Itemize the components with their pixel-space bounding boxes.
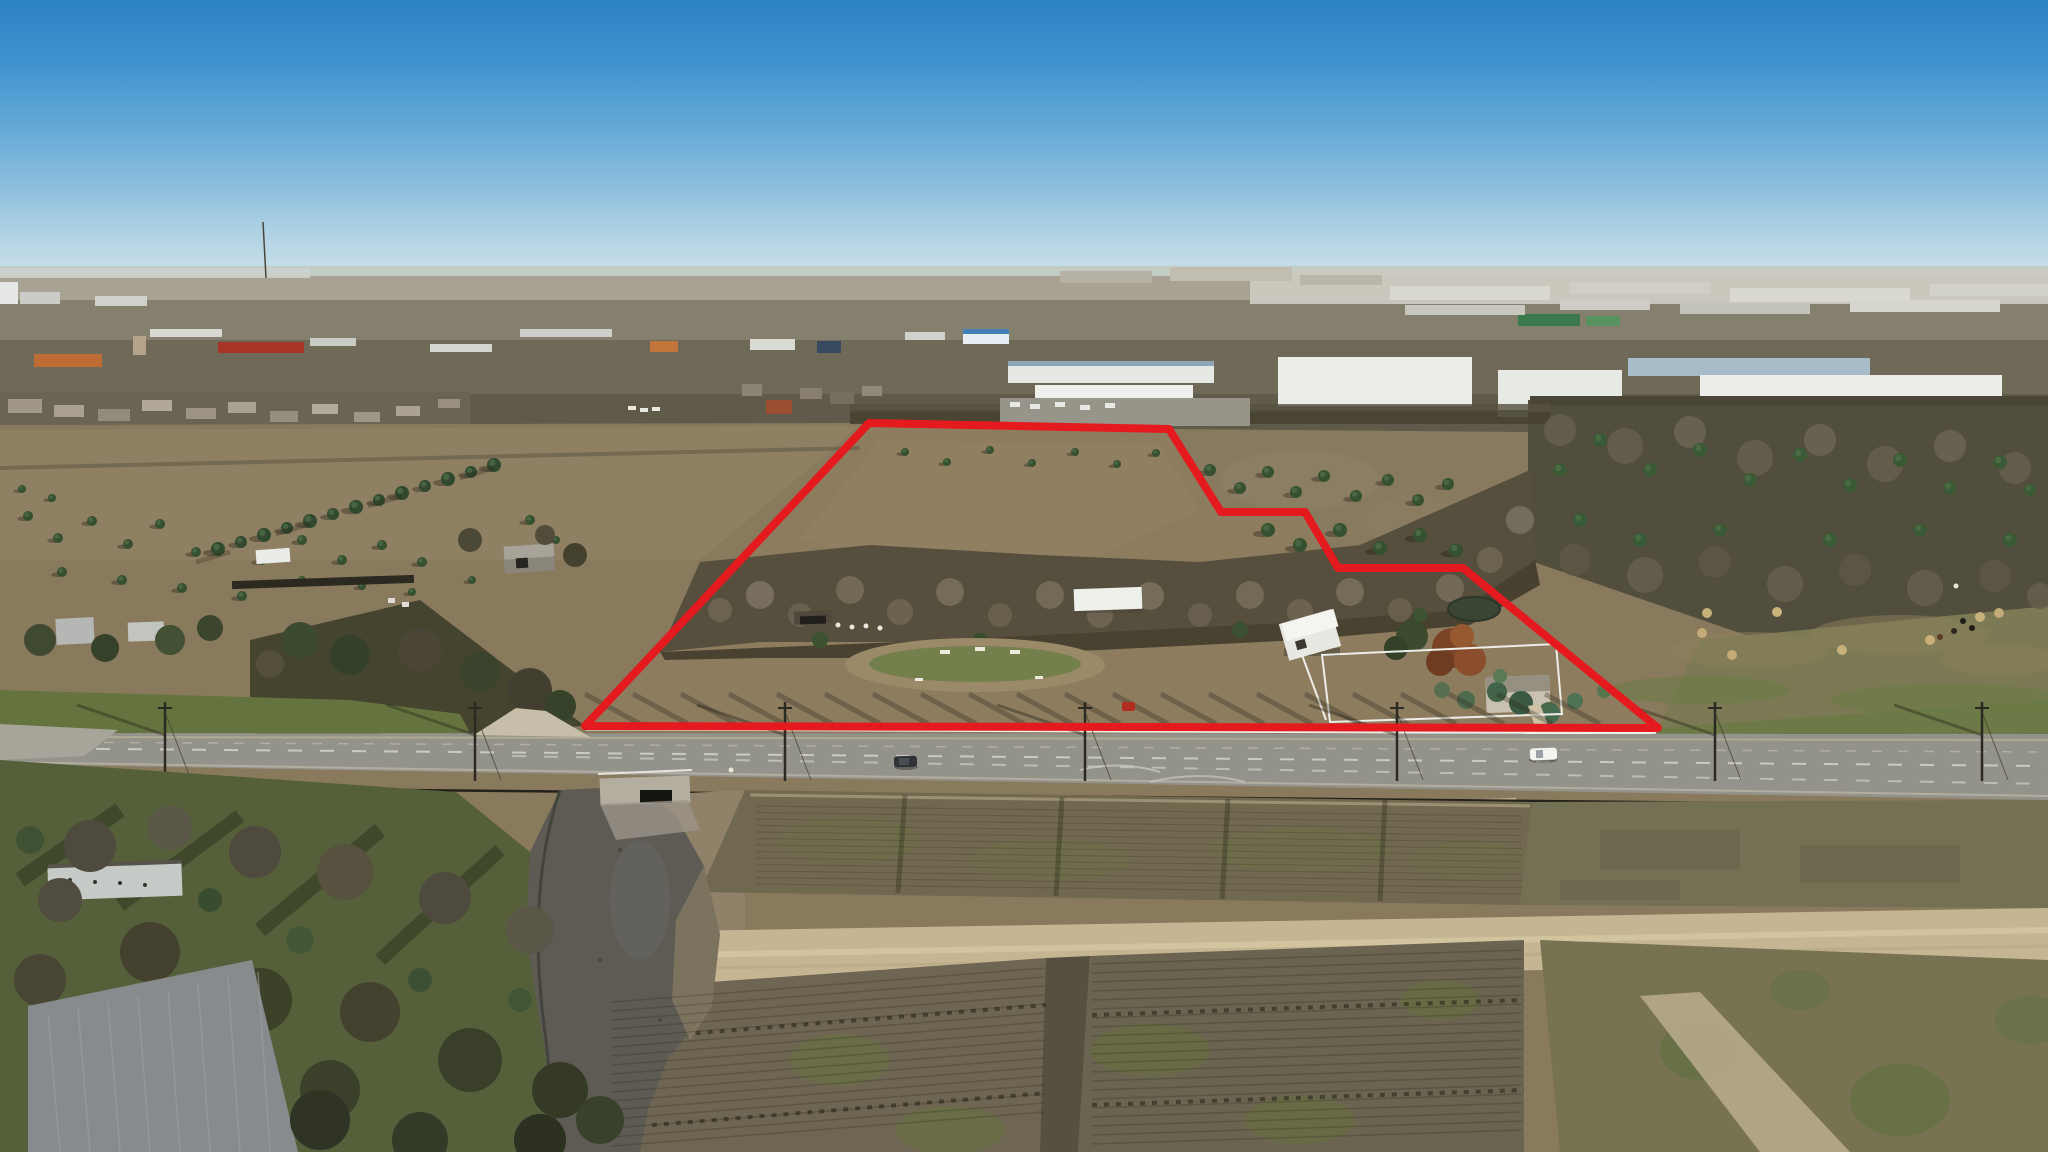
terrain-shape: [55, 534, 60, 539]
arena-jump: [1035, 676, 1043, 679]
arena-jump: [975, 647, 985, 651]
left-horizon-glare: [0, 268, 310, 278]
left-house: [55, 617, 94, 645]
terrain-shape: [49, 495, 53, 499]
terrain-shape: [750, 339, 795, 350]
terrain-shape: [1415, 530, 1421, 536]
house-roof: [354, 412, 380, 422]
parked-car: [640, 408, 648, 412]
terrain-shape: [148, 806, 192, 850]
terrain-shape: [1954, 584, 1959, 589]
warehouse-yard: [1000, 398, 1250, 426]
terrain-shape: [1767, 566, 1803, 602]
terrain-shape: [1336, 578, 1364, 606]
terrain-shape: [340, 982, 400, 1042]
terrain-shape: [1300, 275, 1382, 285]
terrain-shape: [317, 844, 373, 900]
parked-car: [652, 407, 660, 411]
house-roof: [438, 399, 460, 408]
terrain-shape: [1995, 457, 2001, 463]
house-roof: [54, 405, 84, 417]
terrain-shape: [506, 906, 554, 954]
terrain-shape: [438, 1028, 502, 1092]
terrain-shape: [213, 544, 219, 550]
woods-hedge: [1530, 396, 2048, 406]
red-mower: [1122, 702, 1135, 711]
house-roof: [270, 411, 298, 422]
terrain-shape: [887, 599, 913, 625]
terrain-shape: [330, 635, 370, 675]
terrain-shape: [1695, 445, 1701, 451]
tan-tower: [133, 336, 146, 355]
terrain-shape: [516, 558, 529, 569]
hay-bale: [1994, 608, 2004, 618]
terrain-shape: [836, 576, 864, 604]
red-brick-house: [766, 400, 792, 414]
terrain-shape: [1426, 648, 1454, 676]
semi-trailer: [1080, 405, 1090, 410]
white-stable-trailer: [1074, 587, 1143, 611]
blue-warehouse: [1628, 358, 1870, 376]
terrain-shape: [38, 878, 82, 922]
hay-bale: [1925, 635, 1935, 645]
terrain-shape: [1730, 288, 1910, 302]
terrain-shape: [2026, 486, 2031, 491]
terrain-shape: [1320, 472, 1325, 477]
horse: [878, 626, 883, 631]
terrain-shape: [290, 1090, 350, 1150]
terrain-shape: [1352, 492, 1357, 497]
terrain-shape: [14, 954, 66, 1006]
terrain-shape: [64, 820, 116, 872]
terrain-shape: [1845, 480, 1851, 486]
hay-bale: [1772, 607, 1782, 617]
terrain-shape: [1635, 535, 1641, 541]
terrain-shape: [259, 530, 265, 536]
terrain-shape: [458, 528, 482, 552]
terrain-shape: [1979, 560, 2011, 592]
terrain-overlay: [0, 0, 2048, 1152]
hay-bale: [1837, 645, 1847, 655]
terrain-shape: [430, 344, 492, 352]
pedestrian: [729, 768, 734, 773]
terrain-shape: [936, 578, 964, 606]
terrain-shape: [1295, 540, 1301, 546]
terrain-shape: [1029, 460, 1033, 464]
terrain-shape: [1645, 465, 1651, 471]
terrain-shape: [1680, 304, 1810, 314]
terrain-shape: [1036, 581, 1064, 609]
terrain-shape: [1800, 845, 1960, 883]
arena-jump: [1010, 650, 1020, 654]
terrain-shape: [708, 598, 732, 622]
terrain-shape: [899, 758, 909, 765]
terrain-shape: [489, 460, 495, 466]
terrain-shape: [1715, 525, 1721, 531]
semi-trailer: [1030, 404, 1040, 409]
conifer-tree: [508, 988, 532, 1012]
terrain-shape: [1451, 545, 1457, 551]
terrain-shape: [469, 577, 473, 581]
terrain-shape: [527, 516, 532, 521]
house-roof: [800, 388, 822, 399]
terrain-shape: [351, 502, 357, 508]
terrain-shape: [1839, 554, 1871, 586]
house-roof: [312, 404, 338, 414]
house-roof: [228, 402, 256, 413]
green-containers: [1518, 314, 1580, 326]
terrain-shape: [987, 447, 991, 451]
terrain-shape: [812, 632, 828, 648]
orange-store: [34, 354, 102, 367]
terrain-shape: [869, 646, 1081, 682]
terrain-shape: [20, 292, 60, 304]
house-roof: [862, 386, 882, 396]
terrain-shape: [1413, 608, 1427, 622]
terrain-shape: [1444, 480, 1449, 485]
terrain-shape: [1745, 475, 1751, 481]
terrain-shape: [988, 603, 1012, 627]
conifer-tree: [1493, 669, 1507, 683]
terrain-shape: [598, 958, 602, 962]
terrain-shape: [1670, 632, 1830, 668]
terrain-shape: [1188, 603, 1212, 627]
terrain-shape: [1436, 574, 1464, 602]
terrain-shape: [1595, 435, 1601, 441]
terrain-shape: [397, 488, 403, 494]
terrain-shape: [1263, 525, 1269, 531]
terrain-shape: [460, 652, 500, 692]
terrain-shape: [19, 486, 23, 490]
terrain-shape: [1560, 300, 1650, 310]
house-roof: [186, 408, 216, 419]
terrain-shape: [902, 449, 906, 453]
semi-trailer: [1010, 402, 1020, 407]
terrain-shape: [1264, 468, 1269, 473]
aerial-photo: [0, 0, 2048, 1152]
cattle: [1969, 625, 1975, 631]
conifer-tree: [408, 968, 432, 992]
terrain-shape: [229, 826, 281, 878]
blue-hangar: [817, 341, 841, 353]
terrain-shape: [1850, 300, 2000, 312]
white-car-windshield: [1536, 750, 1543, 758]
terrain-shape: [305, 516, 311, 522]
terrain-shape: [1170, 267, 1292, 281]
terrain-shape: [1560, 880, 1680, 900]
terrain-shape: [197, 615, 223, 641]
terrain-shape: [1825, 535, 1831, 541]
terrain-shape: [1206, 466, 1211, 471]
terrain-shape: [800, 616, 826, 625]
terrain-shape: [1414, 496, 1419, 501]
terrain-shape: [1600, 830, 1740, 870]
red-strip-mall: [218, 342, 304, 353]
warehouse-3: [1278, 357, 1472, 406]
arena-jump: [915, 678, 923, 681]
terrain-shape: [1236, 484, 1241, 489]
terrain-shape: [1930, 284, 2048, 296]
conifer-tree: [16, 826, 44, 854]
terrain-shape: [59, 568, 64, 573]
terrain-shape: [310, 338, 356, 346]
terrain-shape: [299, 536, 304, 541]
terrain-shape: [329, 510, 334, 515]
terrain-shape: [25, 512, 30, 517]
terrain-shape: [1915, 525, 1921, 531]
terrain-shape: [1236, 581, 1264, 609]
terrain-shape: [1610, 676, 1790, 704]
terrain-shape: [179, 584, 184, 589]
semi-trailer: [1055, 402, 1065, 407]
horse: [836, 623, 841, 628]
terrain-shape: [1060, 271, 1152, 283]
terrain-shape: [118, 881, 122, 885]
terrain-shape: [237, 538, 242, 543]
terrain-shape: [905, 332, 945, 340]
conifer-tree: [198, 888, 222, 912]
terrain-shape: [1907, 570, 1943, 606]
terrain-shape: [1627, 557, 1663, 593]
terrain-shape: [1934, 430, 1966, 462]
terrain-shape: [1544, 414, 1576, 446]
terrain-shape: [746, 581, 774, 609]
terrain-shape: [1335, 525, 1341, 531]
terrain-shape: [1804, 424, 1836, 456]
terrain-shape: [1895, 455, 1901, 461]
terrain-shape: [2005, 535, 2011, 541]
terrain-shape: [1586, 316, 1620, 326]
terrain-shape: [535, 525, 555, 545]
terrain-shape: [419, 872, 471, 924]
house-roof: [830, 392, 854, 404]
terrain-shape: [1945, 483, 1951, 489]
cattle: [1960, 618, 1966, 624]
terrain-shape: [282, 622, 318, 658]
terrain-shape: [1607, 428, 1643, 464]
terrain-shape: [125, 540, 130, 545]
terrain-shape: [419, 558, 424, 563]
terrain-shape: [24, 624, 56, 656]
terrain-shape: [95, 296, 147, 306]
terrain-shape: [1506, 506, 1534, 534]
hay-bale: [1697, 628, 1707, 638]
horse: [864, 624, 869, 629]
terrain-shape: [1388, 598, 1412, 622]
terrain-shape: [421, 482, 426, 487]
terrain-shape: [1570, 282, 1710, 294]
terrain-shape: [89, 517, 94, 522]
terrain-shape: [1699, 546, 1731, 578]
terrain-shape: [576, 1096, 624, 1144]
terrain-shape: [1477, 547, 1503, 573]
terrain-shape: [1770, 970, 1830, 1010]
terrain-shape: [563, 543, 587, 567]
terrain-shape: [91, 634, 119, 662]
house-roof: [8, 399, 42, 413]
semi-trailer: [1105, 403, 1115, 408]
terrain-shape: [1555, 465, 1561, 471]
terrain-shape: [1390, 286, 1550, 300]
cattle: [1937, 634, 1943, 640]
terrain-shape: [610, 840, 670, 960]
terrain-shape: [618, 848, 622, 852]
terrain-shape: [119, 576, 124, 581]
terrain-shape: [93, 880, 97, 884]
parked-car: [628, 406, 636, 410]
terrain-shape: [193, 548, 198, 553]
terrain-shape: [1008, 361, 1214, 366]
terrain-shape: [1795, 450, 1801, 456]
conifer-tree: [1434, 682, 1450, 698]
terrain-shape: [790, 1034, 890, 1086]
arena-jump: [940, 650, 950, 654]
terrain-shape: [1384, 636, 1408, 660]
terrain-shape: [339, 556, 344, 561]
terrain-shape: [409, 589, 413, 593]
terrain-shape: [944, 459, 948, 463]
terrain-shape: [402, 602, 409, 607]
terrain-shape: [1072, 449, 1076, 453]
terrain-shape: [1737, 440, 1773, 476]
terrain-shape: [379, 541, 384, 546]
terrain-shape: [388, 598, 395, 603]
house-roof: [742, 384, 762, 396]
terrain-shape: [143, 883, 147, 887]
terrain-shape: [1232, 622, 1248, 638]
terrain-shape: [120, 922, 180, 982]
hay-bale: [1702, 608, 1712, 618]
terrain-shape: [1405, 305, 1525, 315]
hay-bale: [1975, 612, 1985, 622]
terrain-shape: [963, 329, 1009, 334]
terrain-shape: [150, 329, 222, 337]
terrain-shape: [1850, 1064, 1950, 1136]
terrain-shape: [256, 650, 284, 678]
terrain-shape: [520, 329, 612, 337]
terrain-shape: [1375, 543, 1381, 549]
right-woods: [1528, 398, 2048, 640]
terrain-shape: [1559, 544, 1591, 576]
white-car: [1530, 748, 1557, 761]
terrain-shape: [650, 341, 678, 352]
terrain-shape: [1153, 450, 1157, 454]
terrain-shape: [1114, 461, 1118, 465]
farm-pond: [1448, 597, 1500, 621]
terrain-shape: [155, 625, 185, 655]
conifer-tree: [286, 926, 314, 954]
house-roof: [142, 400, 172, 411]
house-roof: [396, 406, 420, 416]
hay-bale: [1727, 650, 1737, 660]
white-rv-trailer: [256, 548, 291, 564]
horse: [850, 625, 855, 630]
terrain-shape: [443, 474, 449, 480]
terrain-shape: [1384, 476, 1389, 481]
terrain-shape: [1292, 488, 1297, 493]
terrain-shape: [1450, 624, 1474, 648]
terrain-shape: [239, 592, 244, 597]
terrain-shape: [658, 1018, 662, 1022]
distant-tower-building: [0, 282, 18, 304]
cattle: [1951, 628, 1957, 634]
terrain-shape: [398, 628, 442, 672]
house-roof: [98, 409, 130, 421]
terrain-shape: [1575, 515, 1581, 521]
terrain-shape: [157, 520, 162, 525]
